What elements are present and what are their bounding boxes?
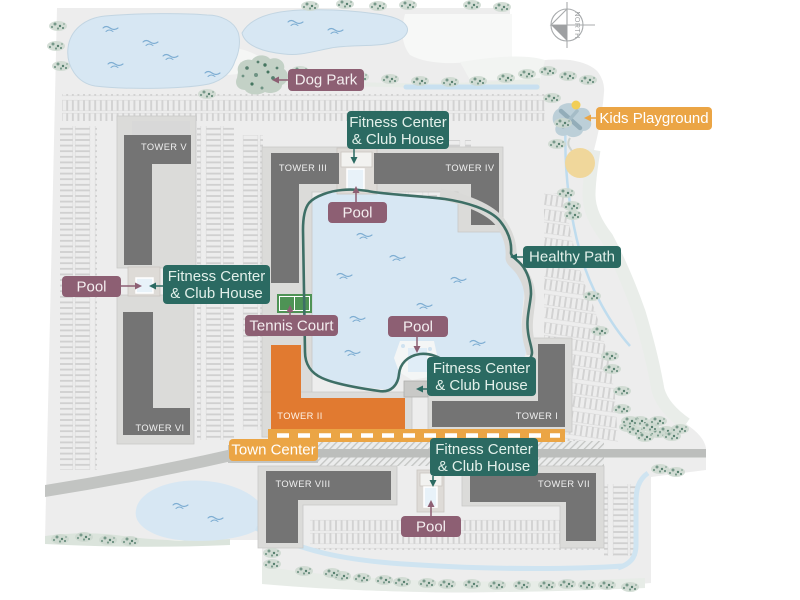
svg-text:TOWER II: TOWER II (277, 411, 322, 421)
svg-text:Fitness Center: Fitness Center (168, 268, 266, 285)
svg-text:Pool: Pool (76, 279, 106, 296)
svg-text:Healthy Path: Healthy Path (529, 249, 615, 266)
svg-text:TOWER VII: TOWER VII (538, 479, 590, 489)
svg-text:Tennis Court: Tennis Court (249, 318, 334, 335)
svg-text:Town Center: Town Center (231, 442, 315, 459)
svg-text:TOWER V: TOWER V (141, 142, 187, 152)
svg-text:TOWER III: TOWER III (279, 163, 327, 173)
svg-text:& Club House: & Club House (435, 377, 528, 394)
svg-text:TOWER VIII: TOWER VIII (276, 479, 331, 489)
svg-text:& Club House: & Club House (438, 458, 531, 475)
svg-text:Fitness Center: Fitness Center (433, 360, 531, 377)
svg-text:Pool: Pool (342, 205, 372, 222)
svg-text:Fitness Center: Fitness Center (349, 114, 447, 131)
svg-text:Dog Park: Dog Park (295, 72, 358, 89)
svg-text:NORTH: NORTH (573, 11, 580, 38)
svg-text:Fitness Center: Fitness Center (435, 441, 533, 458)
svg-text:& Club House: & Club House (170, 285, 263, 302)
svg-text:Pool: Pool (403, 319, 433, 336)
svg-text:TOWER IV: TOWER IV (446, 163, 495, 173)
svg-text:TOWER I: TOWER I (516, 411, 558, 421)
svg-text:TOWER VI: TOWER VI (136, 423, 185, 433)
svg-text:& Club House: & Club House (352, 131, 445, 148)
svg-text:Kids Playground: Kids Playground (599, 110, 708, 127)
svg-text:Pool: Pool (416, 519, 446, 536)
